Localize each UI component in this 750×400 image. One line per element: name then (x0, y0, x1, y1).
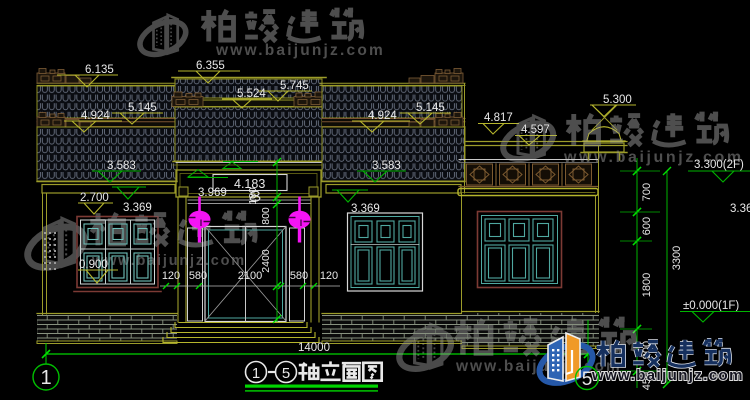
svg-text:4.924: 4.924 (368, 110, 397, 122)
svg-text:5.145: 5.145 (416, 102, 445, 114)
svg-text:120: 120 (320, 270, 338, 282)
svg-text:5.745: 5.745 (280, 80, 309, 92)
svg-text:3.969: 3.969 (198, 187, 227, 199)
svg-text:700: 700 (641, 183, 653, 201)
svg-text:4.924: 4.924 (81, 110, 110, 122)
svg-text:3.369: 3.369 (730, 203, 750, 215)
svg-text:1: 1 (40, 367, 51, 389)
svg-text:5.300: 5.300 (603, 94, 632, 106)
svg-text:4.183: 4.183 (234, 177, 265, 191)
svg-text:120: 120 (162, 270, 180, 282)
svg-text:www.baijunjz.com: www.baijunjz.com (215, 42, 385, 59)
svg-text:6.135: 6.135 (85, 64, 114, 76)
svg-text:2400: 2400 (260, 249, 272, 273)
svg-text:3.583: 3.583 (107, 160, 136, 172)
svg-text:5.145: 5.145 (128, 102, 157, 114)
svg-text:2.700: 2.700 (80, 192, 109, 204)
svg-text:±0.000(1F): ±0.000(1F) (683, 300, 739, 312)
svg-text:4.817: 4.817 (484, 112, 513, 124)
svg-text:3.369: 3.369 (123, 202, 152, 214)
svg-text:6.355: 6.355 (196, 60, 225, 72)
svg-text:800: 800 (260, 207, 272, 225)
svg-text:5: 5 (582, 369, 593, 390)
svg-text:580: 580 (290, 270, 308, 282)
svg-text:600: 600 (641, 217, 653, 235)
svg-text:3.369: 3.369 (351, 203, 380, 215)
svg-text:1800: 1800 (641, 273, 653, 297)
svg-text:5.524: 5.524 (237, 88, 266, 100)
svg-text:3.583: 3.583 (372, 160, 401, 172)
svg-text:14000: 14000 (298, 342, 330, 354)
svg-text:580: 580 (189, 270, 207, 282)
svg-text:www.baijunjz.com: www.baijunjz.com (591, 367, 744, 384)
svg-text:www.baijunjz.com: www.baijunjz.com (563, 149, 744, 166)
svg-text:www.baijunjz.com: www.baijunjz.com (91, 253, 246, 269)
svg-text:3300: 3300 (671, 246, 683, 270)
svg-text:1: 1 (252, 365, 260, 382)
svg-text:2100: 2100 (238, 270, 262, 282)
svg-text:5: 5 (282, 365, 290, 382)
